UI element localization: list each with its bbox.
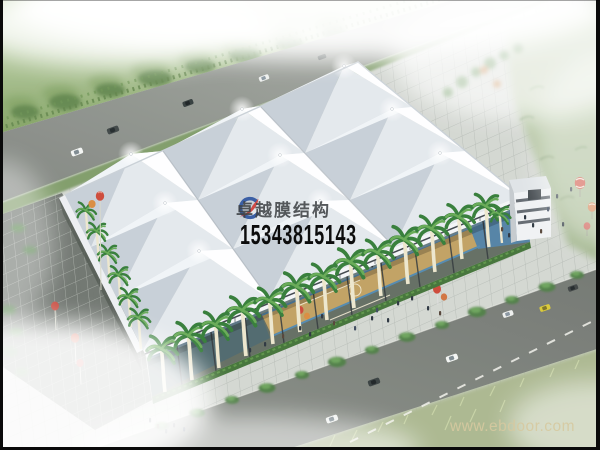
rendering-image: 卓越膜结构 15343815143 www.ebdoor.com [0,0,600,450]
scene-canvas [0,0,600,450]
